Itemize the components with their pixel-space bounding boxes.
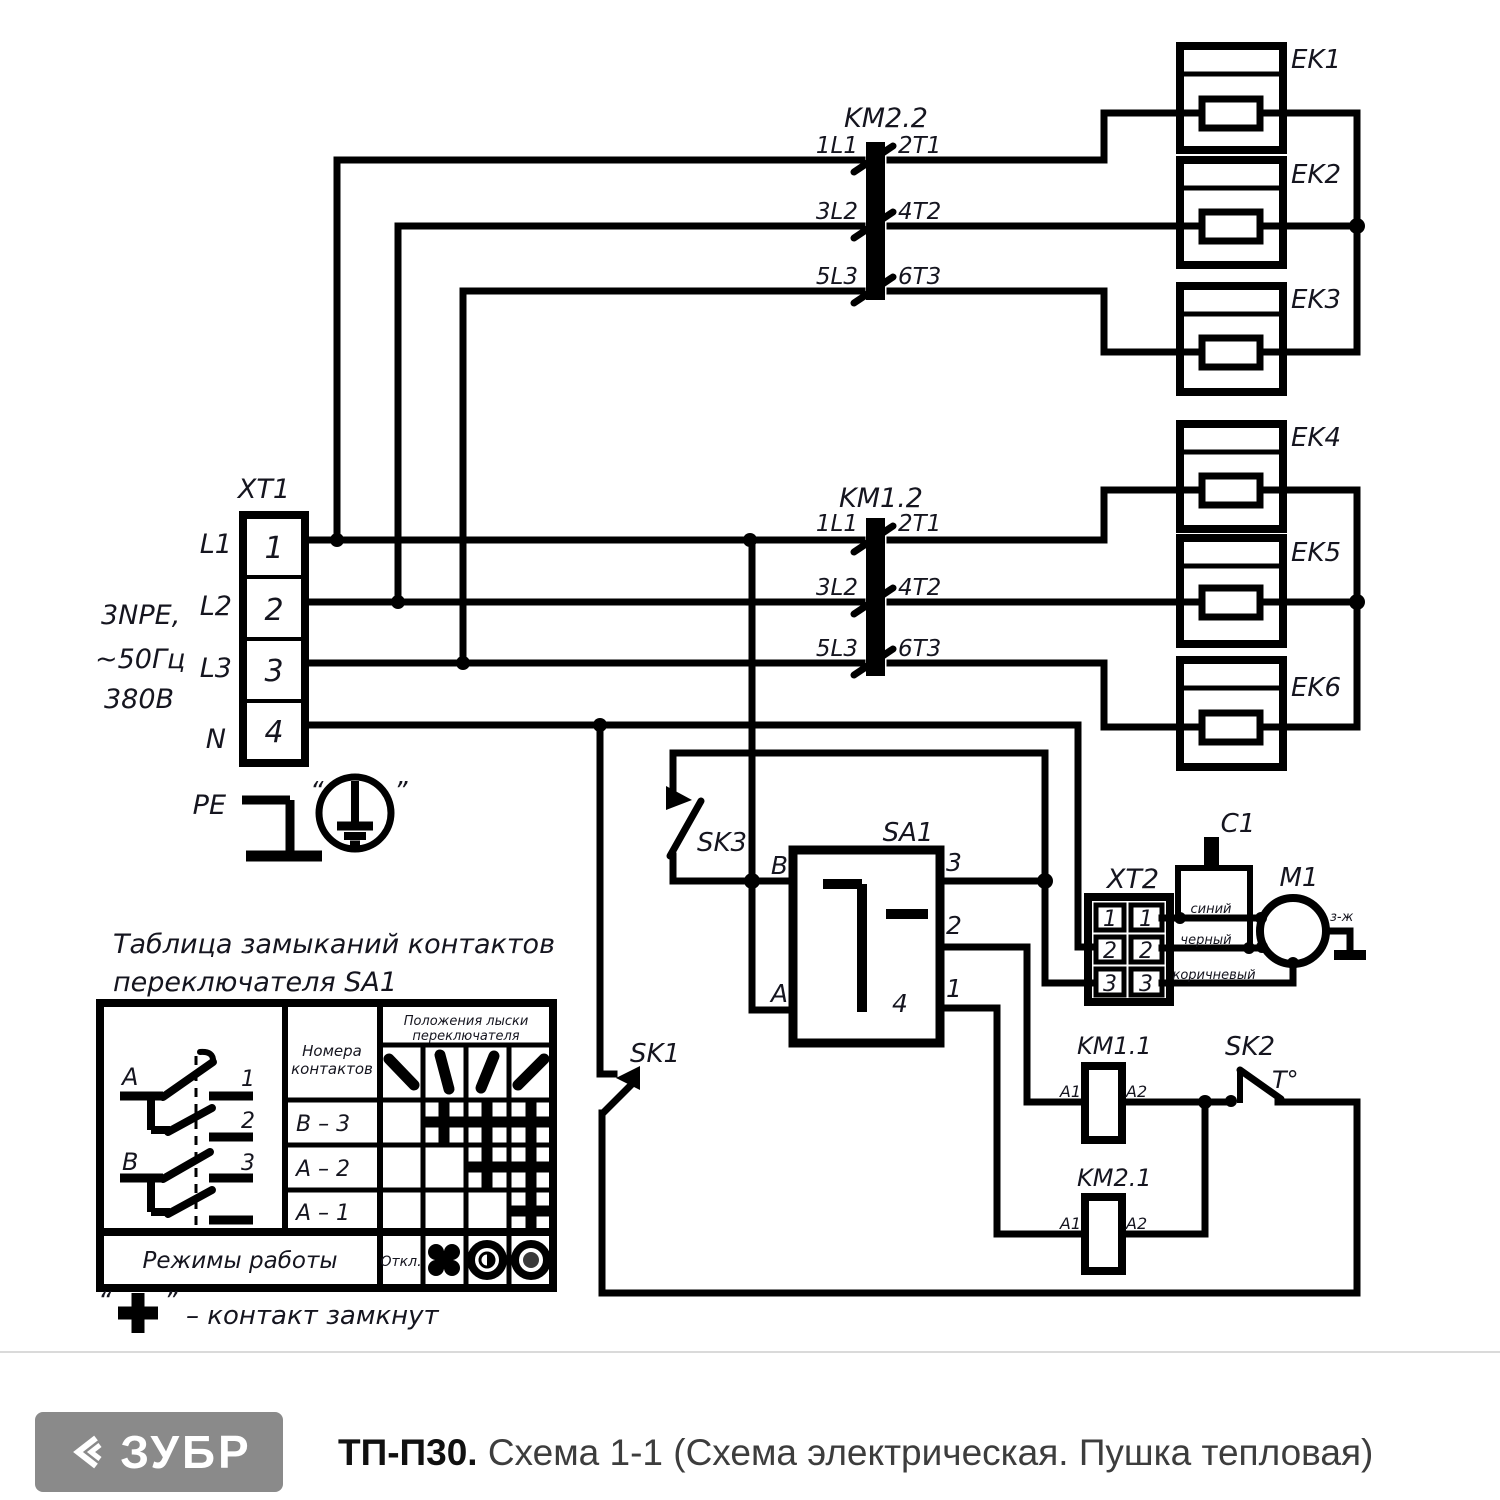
km21-label: KM2.1 — [1077, 1164, 1152, 1192]
ek5-label: EK5 — [1291, 538, 1341, 568]
svg-text:6T3: 6T3 — [898, 636, 941, 662]
wire-black-label: черный — [1180, 933, 1231, 948]
table-row-a1: A – 1 — [294, 1201, 350, 1226]
ground-quote-open: “ — [310, 777, 324, 807]
line-l2: L2 — [200, 591, 232, 622]
svg-text:6T3: 6T3 — [898, 264, 941, 290]
heater-ek2 — [1180, 160, 1283, 265]
xt1-terminal-4: 4 — [264, 715, 283, 750]
schematic-page: XT1 L1 L2 L3 N 1 2 3 4 3NPE, ~50Гц 380В … — [0, 0, 1500, 1500]
svg-text:2: 2 — [1139, 939, 1153, 964]
position-4-icon — [518, 1059, 544, 1085]
svg-text:A2: A2 — [1125, 1082, 1147, 1101]
supply-line-1: 3NPE, — [101, 600, 180, 631]
half-heat-mode-icon — [471, 1244, 503, 1276]
line-l1: L1 — [200, 529, 232, 560]
xt1-label: XT1 — [236, 474, 290, 505]
line-n: N — [206, 724, 226, 755]
position-3-icon — [481, 1056, 494, 1088]
sk2-temp-label: T° — [1272, 1066, 1299, 1094]
sa1-contact-diagram — [120, 1052, 253, 1226]
zubr-arrow-icon — [66, 1430, 110, 1474]
svg-text:3: 3 — [1139, 972, 1153, 997]
xt2-label: XT2 — [1105, 864, 1159, 895]
svg-text:Номера: Номера — [302, 1042, 362, 1060]
c1-capacitor — [1178, 837, 1250, 948]
svg-text:3: 3 — [946, 848, 962, 877]
svg-text:контактов: контактов — [291, 1060, 373, 1078]
svg-text:A: A — [120, 1063, 138, 1091]
svg-text:1: 1 — [946, 974, 962, 1003]
svg-text:4T2: 4T2 — [898, 199, 941, 225]
zubr-logo-badge: ЗУБР — [35, 1412, 283, 1492]
svg-text:A: A — [769, 979, 788, 1008]
ek1-label: EK1 — [1291, 45, 1341, 75]
wire-brown-label: коричневый — [1172, 968, 1255, 983]
table-row-a2: A – 2 — [294, 1157, 350, 1182]
svg-text:Положения лыски: Положения лыски — [404, 1014, 529, 1029]
km21-coil — [1085, 1197, 1122, 1271]
svg-text:1L1: 1L1 — [816, 133, 858, 159]
km12-label: KM1.2 — [839, 483, 923, 514]
svg-text:A1: A1 — [1059, 1214, 1081, 1233]
svg-text:1: 1 — [241, 1067, 255, 1092]
sa1-selector — [793, 850, 940, 1043]
svg-text:2: 2 — [241, 1109, 255, 1134]
modes-label: Режимы работы — [142, 1248, 337, 1274]
schematic-caption: ТП-П30. Схема 1-1 (Схема электрическая. … — [338, 1432, 1373, 1474]
position-2-icon — [440, 1055, 449, 1089]
svg-text:4T2: 4T2 — [898, 575, 941, 601]
svg-text:1L1: 1L1 — [816, 511, 858, 537]
svg-text:2T1: 2T1 — [898, 133, 941, 159]
brand-name: ЗУБР — [120, 1425, 251, 1479]
pe-label: PE — [193, 790, 226, 821]
position-1-icon — [389, 1059, 414, 1085]
mode-icons — [428, 1244, 547, 1276]
legend-plus-icon — [118, 1293, 158, 1333]
heater-ek4 — [1180, 424, 1283, 529]
ek4-label: EK4 — [1291, 423, 1341, 453]
sk1-label: SK1 — [630, 1039, 680, 1069]
heater-ek1 — [1180, 46, 1283, 150]
ek3-label: EK3 — [1291, 285, 1341, 315]
m1-label: M1 — [1280, 863, 1319, 893]
xt1-terminal-1: 1 — [264, 531, 283, 566]
table-title-line1: Таблица замыканий контактов — [113, 929, 555, 960]
legend-text: – контакт замкнут — [186, 1301, 440, 1331]
legend-quote-open: “ — [98, 1287, 112, 1317]
km11-label: KM1.1 — [1077, 1032, 1152, 1060]
footer-divider — [0, 1351, 1500, 1353]
ground-quote-close: ” — [394, 777, 408, 807]
svg-text:5L3: 5L3 — [816, 264, 858, 290]
full-heat-mode-icon — [515, 1244, 547, 1276]
km22-label: KM2.2 — [844, 103, 928, 134]
sk2-label: SK2 — [1225, 1032, 1275, 1062]
svg-text:A2: A2 — [1125, 1214, 1147, 1233]
svg-text:1: 1 — [1139, 907, 1153, 932]
svg-text:3L2: 3L2 — [816, 575, 858, 601]
c1-label: C1 — [1221, 809, 1256, 839]
svg-text:2T1: 2T1 — [898, 511, 941, 537]
sk3-label: SK3 — [697, 828, 747, 858]
heater-ek5 — [1180, 538, 1283, 644]
ground-wire-label: з-ж — [1330, 910, 1354, 925]
svg-text:B: B — [771, 851, 788, 880]
svg-text:A1: A1 — [1059, 1082, 1081, 1101]
svg-text:4: 4 — [892, 989, 908, 1018]
table-row-b3: B – 3 — [296, 1112, 350, 1137]
ek2-label: EK2 — [1291, 160, 1341, 190]
svg-text:2: 2 — [946, 911, 962, 940]
heater-ek3 — [1180, 286, 1283, 392]
svg-text:3L2: 3L2 — [816, 199, 858, 225]
wiring-diagram: XT1 L1 L2 L3 N 1 2 3 4 3NPE, ~50Гц 380В … — [0, 0, 1500, 1500]
svg-text:переключателя: переключателя — [412, 1029, 519, 1044]
svg-text:5L3: 5L3 — [816, 636, 858, 662]
sa1-label: SA1 — [883, 818, 934, 848]
wire-blue-label: синий — [1191, 902, 1232, 917]
mode-off-label: Откл. — [380, 1254, 421, 1270]
svg-text:3: 3 — [241, 1151, 255, 1176]
caption-text: Схема 1-1 (Схема электрическая. Пушка те… — [488, 1432, 1374, 1473]
svg-text:3: 3 — [1103, 972, 1117, 997]
svg-text:B: B — [122, 1148, 138, 1176]
legend-quote-close: ” — [164, 1287, 178, 1317]
closed-contact-marks — [424, 1101, 551, 1231]
heater-ek6 — [1180, 660, 1283, 767]
fan-mode-icon — [428, 1244, 460, 1276]
svg-text:2: 2 — [1103, 939, 1117, 964]
svg-text:1: 1 — [1103, 907, 1117, 932]
ek6-label: EK6 — [1291, 673, 1341, 703]
xt1-terminal-3: 3 — [264, 654, 283, 689]
model-name: ТП-П30. — [338, 1432, 478, 1473]
km11-coil — [1085, 1066, 1122, 1140]
supply-line-3: 380В — [104, 684, 174, 715]
line-l3: L3 — [200, 653, 232, 684]
supply-line-2: ~50Гц — [95, 644, 185, 675]
xt2-terminal-block — [1088, 897, 1170, 1002]
xt1-terminal-2: 2 — [264, 593, 283, 628]
table-title-line2: переключателя SA1 — [113, 967, 397, 998]
